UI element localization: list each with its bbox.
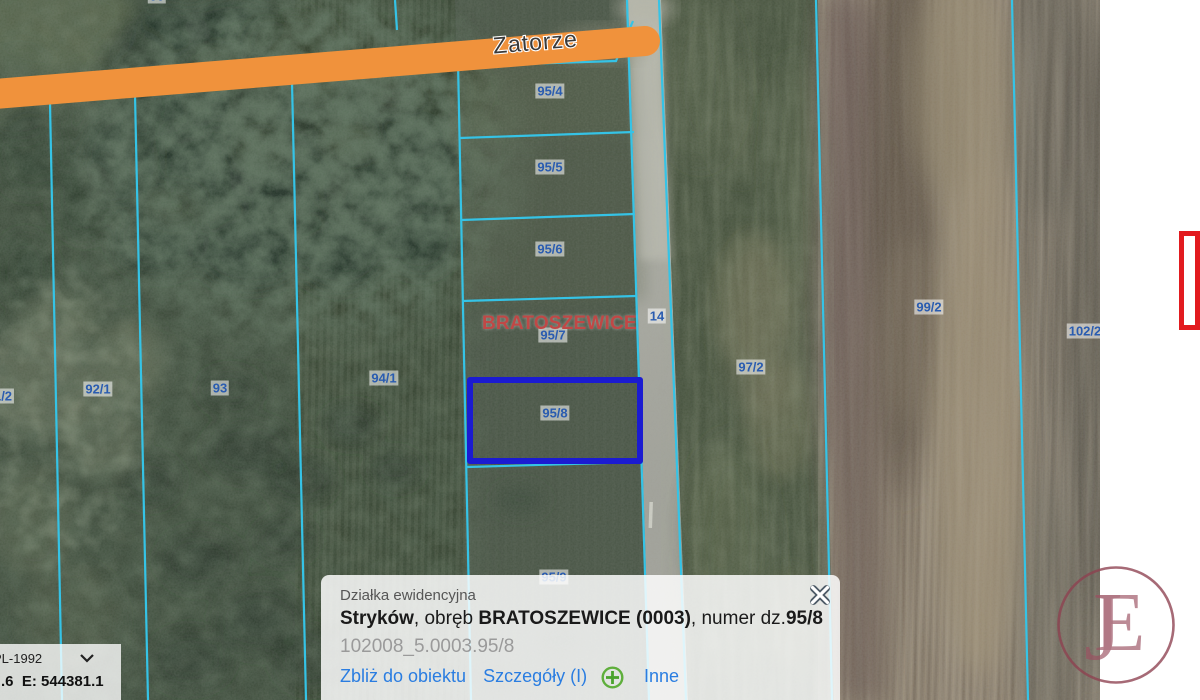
svg-text:J: J	[1084, 573, 1122, 681]
